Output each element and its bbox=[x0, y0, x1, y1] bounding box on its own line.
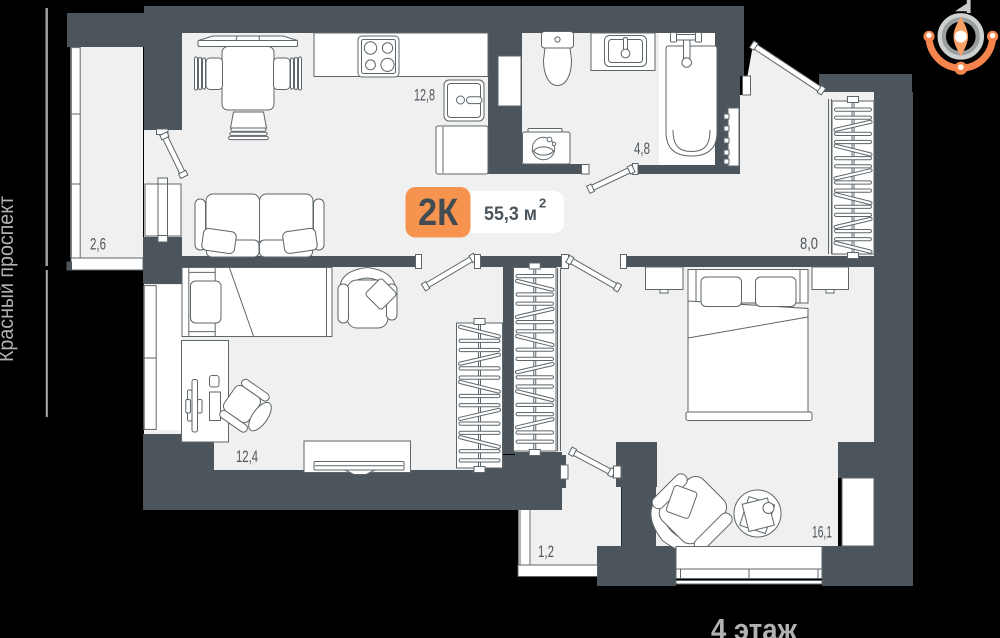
svg-text:4,8: 4,8 bbox=[634, 139, 650, 158]
svg-text:2,6: 2,6 bbox=[90, 235, 106, 254]
svg-text:2: 2 bbox=[539, 196, 546, 211]
svg-text:12,8: 12,8 bbox=[414, 86, 435, 105]
svg-text:8,0: 8,0 bbox=[800, 234, 818, 253]
svg-text:55,3 м: 55,3 м bbox=[484, 204, 537, 225]
svg-text:12,4: 12,4 bbox=[236, 447, 258, 466]
svg-text:16,1: 16,1 bbox=[812, 523, 832, 542]
svg-text:Красный проспект: Красный проспект bbox=[0, 196, 18, 362]
svg-text:4 этаж: 4 этаж bbox=[711, 612, 798, 638]
svg-text:1,2: 1,2 bbox=[538, 542, 554, 561]
svg-text:2К: 2К bbox=[418, 192, 459, 234]
